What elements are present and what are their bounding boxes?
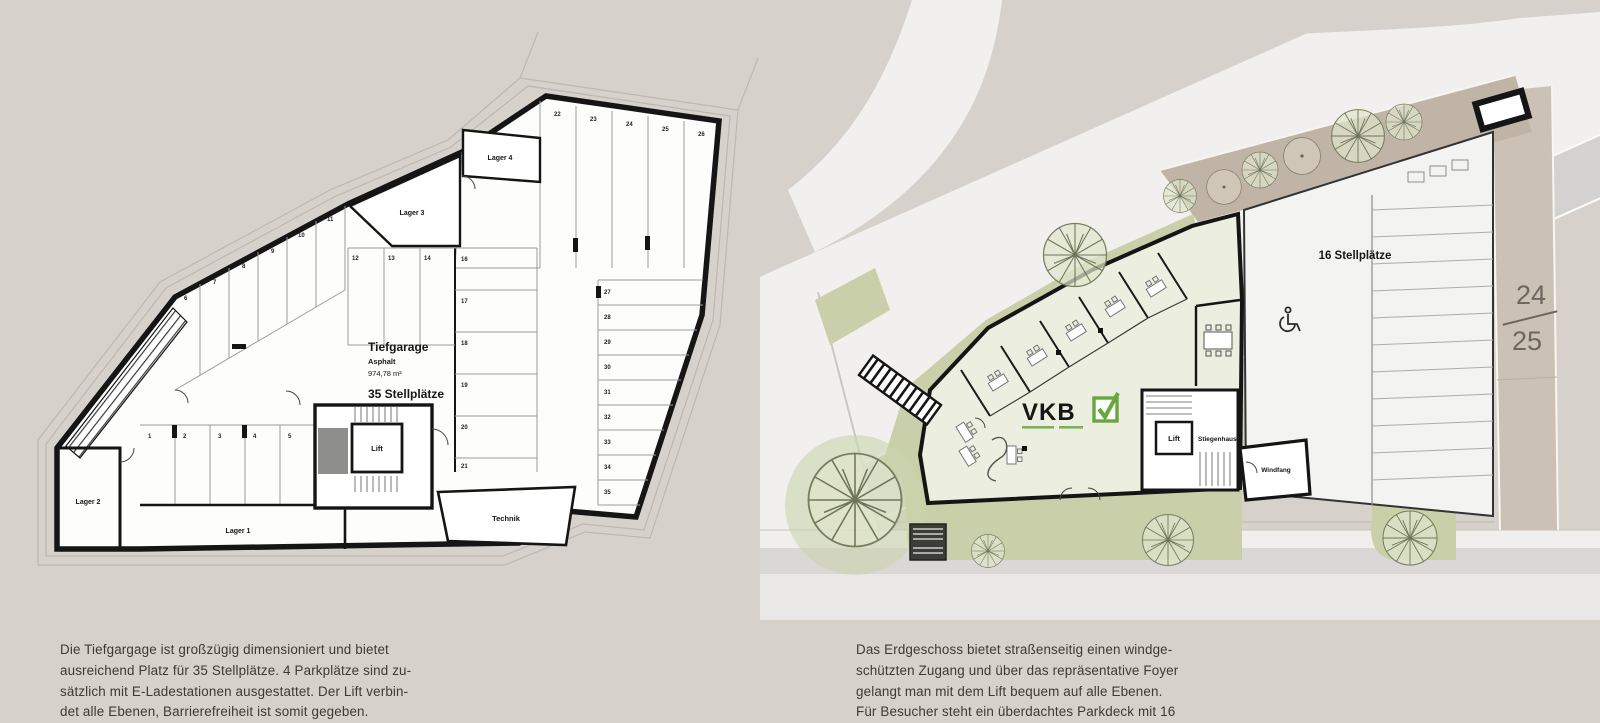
svg-text:17: 17 <box>461 299 468 305</box>
room-lager4-label: Lager 4 <box>488 155 513 162</box>
svg-text:32: 32 <box>604 415 611 421</box>
svg-text:30: 30 <box>604 365 611 371</box>
windfang: Windfang <box>1240 440 1310 500</box>
svg-text:25: 25 <box>662 127 669 133</box>
svg-text:14: 14 <box>424 256 431 262</box>
drain-grate <box>910 524 946 560</box>
caption-line: Die Tiefgargage ist großzügig dimensioni… <box>60 640 480 661</box>
lift-label: Lift <box>371 444 383 453</box>
caption-line: Das Erdgeschoss bietet straßenseitig ein… <box>856 640 1276 661</box>
stiegenhaus-label: Stiegenhaus <box>1198 436 1237 443</box>
svg-text:35: 35 <box>604 490 611 496</box>
room-technik: Technik <box>438 487 575 545</box>
svg-text:11: 11 <box>327 217 334 223</box>
vkb-logo-text: VKB <box>1022 399 1076 426</box>
room-lager3-label: Lager 3 <box>400 210 425 217</box>
svg-text:21: 21 <box>461 464 468 470</box>
caption-line: gelangt man mit dem Lift bequem auf alle… <box>856 682 1276 703</box>
page-number-top: 24 <box>1500 282 1580 309</box>
svg-text:20: 20 <box>461 425 468 431</box>
svg-text:Lager 1: Lager 1 <box>226 528 251 535</box>
erdgeschoss-caption: Das Erdgeschoss bietet straßenseitig ein… <box>856 640 1276 723</box>
tiefgarage-caption: Die Tiefgargage ist großzügig dimensioni… <box>60 640 480 723</box>
svg-text:28: 28 <box>604 315 611 321</box>
svg-text:16: 16 <box>461 257 468 263</box>
svg-text:18: 18 <box>461 341 468 347</box>
svg-text:13: 13 <box>388 256 395 262</box>
plan-title: Tiefgarage <box>368 340 429 354</box>
svg-text:Lager 2: Lager 2 <box>76 499 101 506</box>
vkb-tagline <box>1059 426 1083 429</box>
caption-line: sätzlich mit E-Ladestationen ausgestatte… <box>60 682 480 703</box>
page-number-slash <box>1503 310 1558 325</box>
stair-core: Lift <box>315 405 432 508</box>
plan-surface: Asphalt <box>368 357 396 366</box>
windfang-label: Windfang <box>1261 467 1291 474</box>
plan-area: 974,78 m² <box>368 369 402 378</box>
svg-text:10: 10 <box>298 233 305 239</box>
svg-text:26: 26 <box>698 132 705 138</box>
page-number-bottom: 25 <box>1500 328 1580 355</box>
tiefgarage-floorplan: 22 23 24 25 26 Lager 4 Lager 3 16 17 18 … <box>0 0 760 620</box>
svg-text:27: 27 <box>604 290 611 296</box>
svg-text:22: 22 <box>554 112 561 118</box>
svg-text:23: 23 <box>590 117 597 123</box>
stair-core: Lift Stiegenhaus <box>1142 390 1238 490</box>
plan-capacity: 35 Stellplätze <box>368 387 444 401</box>
svg-text:12: 12 <box>352 256 359 262</box>
shaft-gray <box>318 428 348 474</box>
parkdeck-label: 16 Stellplätze <box>1319 250 1392 262</box>
vkb-tagline <box>1022 426 1054 429</box>
lift-label: Lift <box>1168 434 1180 443</box>
svg-text:24: 24 <box>626 122 633 128</box>
page-number: 24 25 <box>1500 282 1580 355</box>
erdgeschoss-siteplan: 16 Stellplätze <box>760 0 1600 620</box>
svg-text:34: 34 <box>604 465 611 471</box>
svg-text:Technik: Technik <box>492 514 521 523</box>
caption-line: schützten Zugang und über das repräsenta… <box>856 661 1276 682</box>
svg-text:33: 33 <box>604 440 611 446</box>
svg-text:31: 31 <box>604 390 611 396</box>
svg-text:19: 19 <box>461 383 468 389</box>
svg-text:29: 29 <box>604 340 611 346</box>
caption-line: ausreichend Platz für 35 Stellplätze. 4 … <box>60 661 480 682</box>
